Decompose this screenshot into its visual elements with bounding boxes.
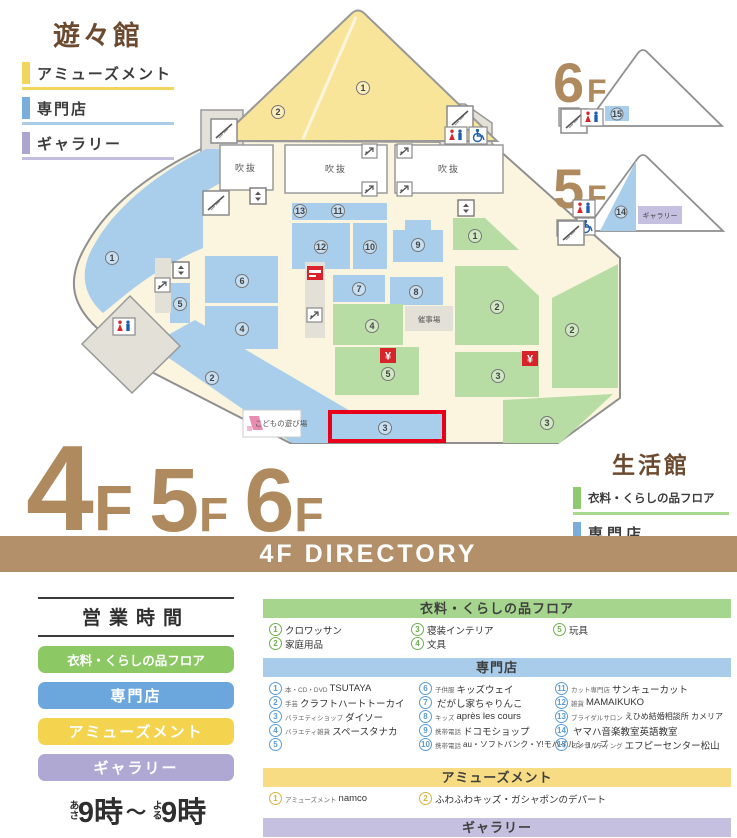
item-name: だがし家ちゃりんこ [437,696,523,710]
svg-text:15: 15 [612,109,622,119]
wheelchair-icon [469,127,487,144]
map-label-green-2b: 2 [566,324,579,337]
floor-suffix: F [94,482,133,536]
floor-suffix: F [294,496,323,536]
atrium-label: 吹抜 [235,162,257,173]
item-number: 4 [411,637,424,650]
item-number: 2 [419,792,432,805]
svg-text:9: 9 [415,240,420,250]
section-header: 専門店 [263,658,731,677]
directory-item: 2ふわふわキッズ・ガシャポンのデパート [419,792,679,805]
elevator-icon [173,262,189,278]
item-number: 4 [269,724,282,737]
hours-pill-amusement: アミューズメント [38,718,234,745]
hours-tilde: 〜 [126,796,146,825]
item-name: 文具 [427,637,446,651]
floor-4f: 4 F [26,441,133,536]
item-number: 12 [555,696,568,709]
svg-text:4: 4 [239,324,244,334]
directory-item: 3寝装インテリア [411,623,553,636]
svg-text:10: 10 [365,242,375,252]
item-category: 携帯電話 [435,726,461,736]
item-name: MAMAIKUKO [586,697,644,708]
item-category: ブライダルサロン [571,712,623,722]
floor-directory-page: 遊々館 アミューズメント 専門店 ギャラリー [0,0,737,838]
item-name: ヤマハ音楽教室英語教室 [573,724,678,738]
directory-section-clothing: 衣料・くらしの品フロア 1クロワッサン 2家庭用品 3寝装インテリア 4文具 5… [263,599,731,651]
svg-text:12: 12 [316,242,326,252]
kids-area-label: こどもの遊び場 [255,418,308,428]
item-category: バラエティショップ [285,712,343,722]
hours-close-prefix: よる [150,800,160,820]
restroom-icon [573,200,595,217]
item-name: クロワッサン [285,623,342,637]
hours-panel: 営業時間 衣料・くらしの品フロア 専門店 アミューズメント ギャラリー あさ 9… [38,597,234,838]
svg-text:¥: ¥ [527,354,534,366]
directory-item: 2手芸クラフトハートトーカイ [269,696,419,709]
map-label-blue-3: 3 [379,422,392,435]
svg-text:1: 1 [109,253,114,263]
map-area-green-5 [335,347,419,395]
hours-open-prefix: あさ [67,800,77,820]
stairs-icon [203,191,229,215]
atm-icon: ¥ [380,348,396,363]
map-label-blue-1: 1 [106,252,119,265]
svg-text:3: 3 [382,423,387,433]
mini-6f-shop-label: 15 [611,108,623,120]
hours-open-time: 9時 [78,789,123,831]
map-label-blue-6: 6 [236,275,249,288]
directory-item: 5玩具 [553,623,713,636]
item-number: 6 [419,682,432,695]
floor-5f: 5 F [149,466,228,536]
svg-text:14: 14 [616,207,626,217]
floor-suffix: F [199,496,228,536]
service-sign-icon [307,266,323,280]
item-number: 3 [269,710,282,723]
item-number: 13 [555,710,568,723]
item-name: ドコモショップ [463,724,530,738]
item-category: コンサルティング [571,740,623,750]
legend-color-bar [22,132,30,154]
item-number: 8 [419,710,432,723]
escalator-icon [397,144,412,158]
svg-text:8: 8 [413,287,418,297]
item-number: 5 [269,738,282,751]
directory-section-amusement: アミューズメント 1アミューズメントnamco 2ふわふわキッズ・ガシャポンのデ… [263,768,731,806]
banner-title: 4F DIRECTORY [260,540,478,569]
escalator-icon [155,278,170,292]
elevator-icon [250,188,266,204]
svg-text:¥: ¥ [385,351,392,363]
directory-item: 1アミューズメントnamco [269,792,419,805]
map-label-blue-9: 9 [412,239,425,252]
item-name: 寝装インテリア [427,623,494,637]
atrium-label: 吹抜 [325,163,347,174]
map-area-green-3b [503,394,613,443]
item-number: 2 [269,637,282,650]
item-name: TSUTAYA [330,683,372,694]
item-name: スペースタナカ [332,724,397,738]
item-number: 11 [555,682,568,695]
svg-text:3: 3 [544,418,549,428]
map-label-amusement-1: 1 [357,82,370,95]
directory-item: 2家庭用品 [269,637,411,650]
item-name: ダイソー [345,710,383,724]
directory-item: 11カット専門店サンキューカット [555,682,731,695]
legend-label: 衣料・くらしの品フロア [588,490,715,506]
map-label-blue-4: 4 [236,323,249,336]
directory-section-gallery: ギャラリー [263,818,731,837]
item-category: 本・CD・DVD [285,684,328,694]
map-label-green-3a: 3 [492,370,505,383]
map-label-blue-8: 8 [410,286,423,299]
map-label-blue-12: 12 [315,241,328,254]
item-number: 10 [419,738,432,751]
map-label-blue-11: 11 [332,205,345,218]
item-number: 1 [269,792,282,805]
item-name: エフピーセンター松山 [625,738,720,752]
item-name: サンキューカット [612,682,688,696]
restroom-icon [445,127,467,144]
directory-item: 1本・CD・DVDTSUTAYA [269,682,419,695]
hours-title: 営業時間 [38,597,234,637]
map-label-blue-5: 5 [174,298,187,311]
item-number: 7 [419,696,432,709]
atrium-label: 吹抜 [438,163,460,174]
svg-text:2: 2 [494,302,499,312]
directory-listings: 衣料・くらしの品フロア 1クロワッサン 2家庭用品 3寝装インテリア 4文具 5… [263,599,731,837]
item-category: アミューズメント [285,794,337,804]
floor-number: 5 [149,466,199,536]
elevator-icon [458,200,474,216]
map-label-blue-13: 13 [294,205,307,218]
item-number: 5 [553,623,566,636]
map-label-green-5: 5 [382,368,395,381]
legend-color-bar [573,487,581,509]
svg-text:2: 2 [569,325,574,335]
directory-item: 8キッズaprès les cours [419,710,555,723]
floor-number: 6 [244,466,294,536]
escalator-icon [362,144,377,158]
directory-item: 5 [269,738,419,751]
directory-item: 10携帯電話au・ソフトバンク・Y!モバイルショップ [419,738,555,751]
directory-item: 14ヤマハ音楽教室英語教室 [555,724,731,737]
floors-title: 4 F 5 F 6 F [26,441,340,536]
mini-5f-shop-label: 14 [615,206,627,218]
item-category: カット専門店 [571,684,610,694]
directory-item: 4文具 [411,637,553,650]
escalator-icon [397,182,412,196]
item-name: クラフトハートトーカイ [300,696,405,710]
hours-pill-specialty: 専門店 [38,682,234,709]
item-number: 9 [419,724,432,737]
stairs-icon [211,119,237,143]
item-category: キッズ [435,712,455,722]
section-header: アミューズメント [263,768,731,787]
directory-banner: 4F DIRECTORY [0,536,737,572]
hours-pill-clothing: 衣料・くらしの品フロア [38,646,234,673]
map-label-amusement-2: 2 [272,106,285,119]
item-name: 玩具 [569,623,588,637]
building-title-seikatsukan: 生活館 [573,446,729,480]
item-name: ふわふわキッズ・ガシャポンのデパート [435,792,606,806]
atm-icon: ¥ [522,351,538,366]
directory-item: 13ブライダルサロンえひめ結婚相談所 カメリア [555,710,731,723]
item-number: 14 [555,724,568,737]
legend-row-clothing: 衣料・くらしの品フロア [573,486,729,515]
map-label-blue-10: 10 [364,241,377,254]
legend-color-bar [22,62,30,84]
hours-close-time: 9時 [161,789,206,831]
svg-text:7: 7 [356,284,361,294]
escalator-icon [362,182,377,196]
map-label-blue-7: 7 [353,283,366,296]
escalator-icon [307,308,322,322]
item-number: 15 [555,738,568,751]
map-label-green-3b: 3 [541,417,554,430]
item-category: 子供服 [435,684,455,694]
item-name: namco [339,793,368,804]
item-number: 3 [411,623,424,636]
restroom-icon [581,109,603,126]
kids-play-area: こどもの遊び場 [243,410,308,437]
item-number: 1 [269,623,282,636]
svg-text:3: 3 [495,371,500,381]
item-name: えひめ結婚相談所 カメリア [625,711,723,722]
floor-number: 4 [26,441,94,536]
item-number: 2 [269,696,282,709]
legend-color-bar [22,97,30,119]
item-name: après les cours [457,711,521,722]
directory-item: 7だがし家ちゃりんこ [419,696,555,709]
event-space-label: 催事場 [418,314,441,324]
item-category: 携帯電話 [435,740,461,750]
svg-text:11: 11 [333,206,343,216]
svg-text:2: 2 [275,107,280,117]
svg-text:1: 1 [472,231,477,241]
item-number: 1 [269,682,282,695]
item-category: 雑貨 [571,698,584,708]
mini-6f-number: 6 [553,51,584,114]
hours-pill-gallery: ギャラリー [38,754,234,781]
directory-item: 4バラエティ雑貨スペースタナカ [269,724,419,737]
item-name: キッズウェイ [457,682,514,696]
svg-text:4: 4 [369,321,374,331]
directory-item: 15コンサルティングエフピーセンター松山 [555,738,731,751]
item-category: 手芸 [285,698,298,708]
svg-text:2: 2 [209,373,214,383]
map-label-green-1: 1 [469,230,482,243]
map-label-green-2a: 2 [491,301,504,314]
map-label-blue-2: 2 [206,372,219,385]
directory-item: 12雑貨MAMAIKUKO [555,696,731,709]
opening-hours: あさ 9時 〜 よる 9時 [38,789,234,831]
map-label-green-4: 4 [366,320,379,333]
mini-5f-gallery-label: ギャラリー [643,212,678,220]
item-category: バラエティ雑貨 [285,726,330,736]
svg-text:1: 1 [360,83,365,93]
section-header: 衣料・くらしの品フロア [263,599,731,618]
mini-maps-5f-6f: 6 F 15 5 F 14 ギャラリー [545,36,737,248]
directory-item: 3バラエティショップダイソー [269,710,419,723]
svg-text:5: 5 [385,369,390,379]
restroom-icon [113,318,135,335]
section-header: ギャラリー [263,818,731,837]
stairs-icon [558,221,584,245]
directory-item: 6子供服キッズウェイ [419,682,555,695]
svg-text:13: 13 [295,206,305,216]
item-name: 家庭用品 [285,637,323,651]
svg-text:6: 6 [239,276,244,286]
directory-item: 9携帯電話ドコモショップ [419,724,555,737]
floor-6f: 6 F [244,466,323,536]
directory-section-specialty: 専門店 1本・CD・DVDTSUTAYA 2手芸クラフトハートトーカイ 3バラエ… [263,658,731,752]
directory-item: 1クロワッサン [269,623,411,636]
svg-text:5: 5 [177,299,182,309]
